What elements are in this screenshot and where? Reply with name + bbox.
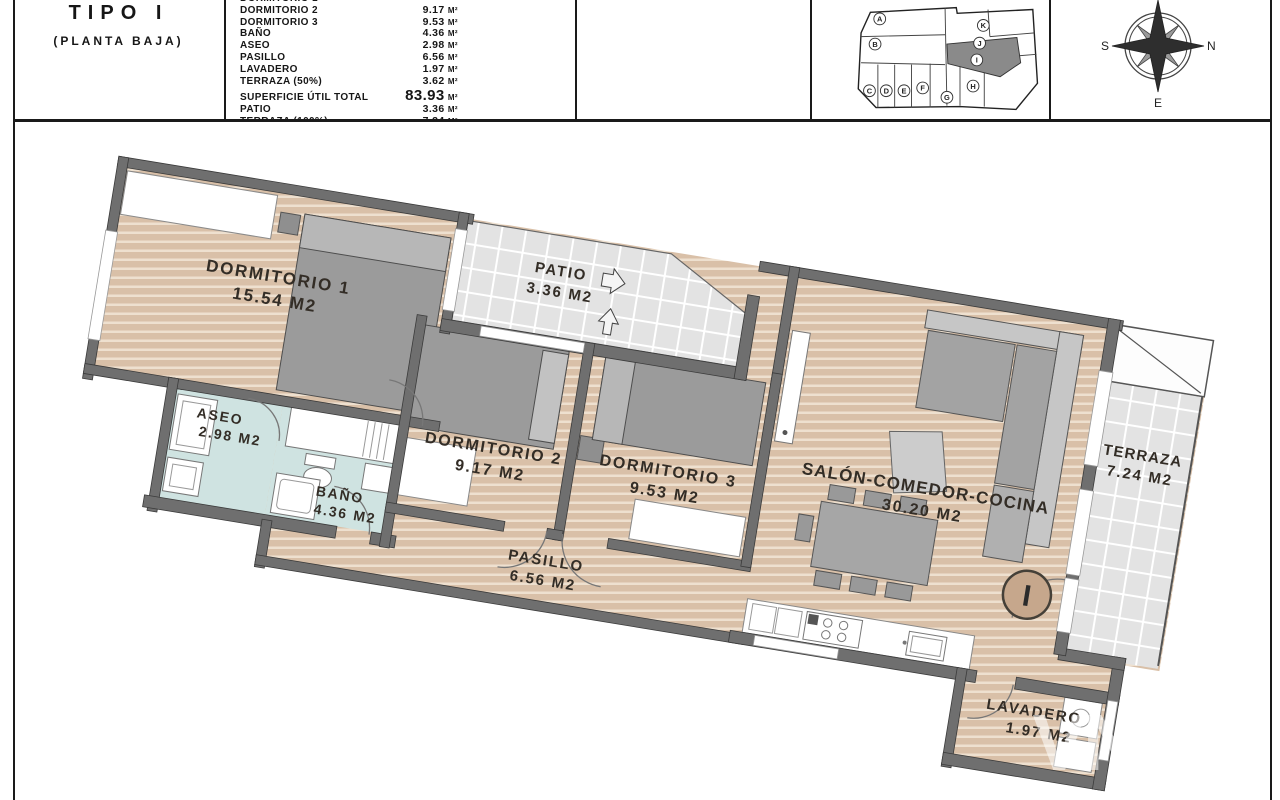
compass-label-s: S (1101, 39, 1109, 53)
svg-text:E: E (902, 87, 907, 96)
row-unit: M² (448, 29, 458, 38)
table-row: TERRAZA (100%)7.24 M² (240, 116, 458, 119)
row-unit: M² (448, 77, 458, 86)
row-unit: M² (448, 41, 458, 50)
keyplan-unit-c: C (864, 85, 876, 97)
row-value: 83.93 (405, 87, 445, 104)
area-table: DORMITORIO 1 DORMITORIO 29.17 M² DORMITO… (240, 0, 458, 119)
keyplan-unit-b: B (869, 38, 881, 50)
keyplan-unit-i: I (971, 54, 983, 66)
row-label: ASEO (240, 41, 270, 52)
keyplan-unit-e: E (898, 85, 910, 97)
row-value: 1.97 (423, 63, 445, 75)
row-label: LAVADERO (240, 65, 298, 76)
row-value: 7.24 (423, 115, 445, 119)
svg-text:K: K (981, 21, 987, 30)
row-value: 4.36 (423, 27, 445, 39)
keyplan-unit-d: D (880, 85, 892, 97)
type-label: TIPO I (13, 2, 224, 25)
compass-label-n: N (1207, 39, 1216, 53)
title-block: TIPO I (PLANTA BAJA) DORMITORIO 1 DORMIT… (13, 0, 1272, 119)
row-label: PATIO (240, 105, 271, 116)
keyplan-unit-h: H (967, 80, 979, 92)
key-plan: A B C D E F G H I J K (848, 2, 1044, 116)
sofa-seat (916, 330, 1015, 421)
svg-text:B: B (872, 40, 878, 49)
row-unit: M² (448, 93, 458, 102)
svg-text:H: H (970, 82, 975, 91)
row-value: 3.36 (423, 103, 445, 115)
row-unit: M² (448, 65, 458, 74)
row-unit: M² (448, 117, 458, 119)
appliance (774, 608, 802, 638)
row-label: DORMITORIO 3 (240, 18, 318, 29)
floor-plan: DORMITORIO 1 15.54 M2 PATIO 3.36 M2 ASEO… (13, 122, 1272, 800)
row-unit: M² (448, 18, 458, 27)
svg-text:J: J (978, 39, 982, 48)
row-value: 6.56 (423, 51, 445, 63)
floor-label: (PLANTA BAJA) (13, 34, 224, 48)
row-label: TERRAZA (100%) (240, 117, 328, 119)
svg-text:F: F (920, 84, 925, 93)
row-value: 9.53 (423, 16, 445, 28)
type-block: TIPO I (PLANTA BAJA) (13, 0, 224, 48)
table-row: TERRAZA (50%)3.62 M² (240, 76, 458, 88)
appliance (749, 604, 777, 634)
row-unit: M² (448, 105, 458, 114)
svg-text:D: D (884, 87, 890, 96)
row-value: 9.17 (423, 4, 445, 16)
toilet (162, 457, 203, 496)
svg-text:I: I (976, 56, 978, 65)
row-label: BAÑO (240, 29, 271, 40)
svg-text:C: C (867, 87, 873, 96)
row-label: PASILLO (240, 53, 285, 64)
svg-text:A: A (877, 15, 883, 24)
svg-text:G: G (944, 93, 950, 102)
row-label: DORMITORIO 2 (240, 6, 318, 17)
row-value: 3.62 (423, 75, 445, 87)
row-unit: M² (448, 6, 458, 15)
row-label: SUPERFICIE ÚTIL TOTAL (240, 93, 368, 104)
plan-sheet: TIPO I (PLANTA BAJA) DORMITORIO 1 DORMIT… (0, 0, 1280, 800)
keyplan-unit-g: G (941, 91, 953, 103)
compass-main-star (1112, 0, 1204, 92)
compass-label-e: E (1154, 96, 1162, 110)
row-value: 2.98 (423, 39, 445, 51)
keyplan-unit-f: F (917, 82, 929, 94)
row-unit: M² (448, 53, 458, 62)
keyplan-unit-a: A (874, 13, 886, 25)
keyplan-unit-j: J (974, 37, 986, 49)
watermark: VN (1032, 698, 1137, 787)
compass-rose: S N E (1095, 0, 1225, 112)
row-label: TERRAZA (50%) (240, 77, 322, 88)
nightstand (278, 212, 301, 235)
keyplan-unit-k: K (977, 20, 989, 32)
